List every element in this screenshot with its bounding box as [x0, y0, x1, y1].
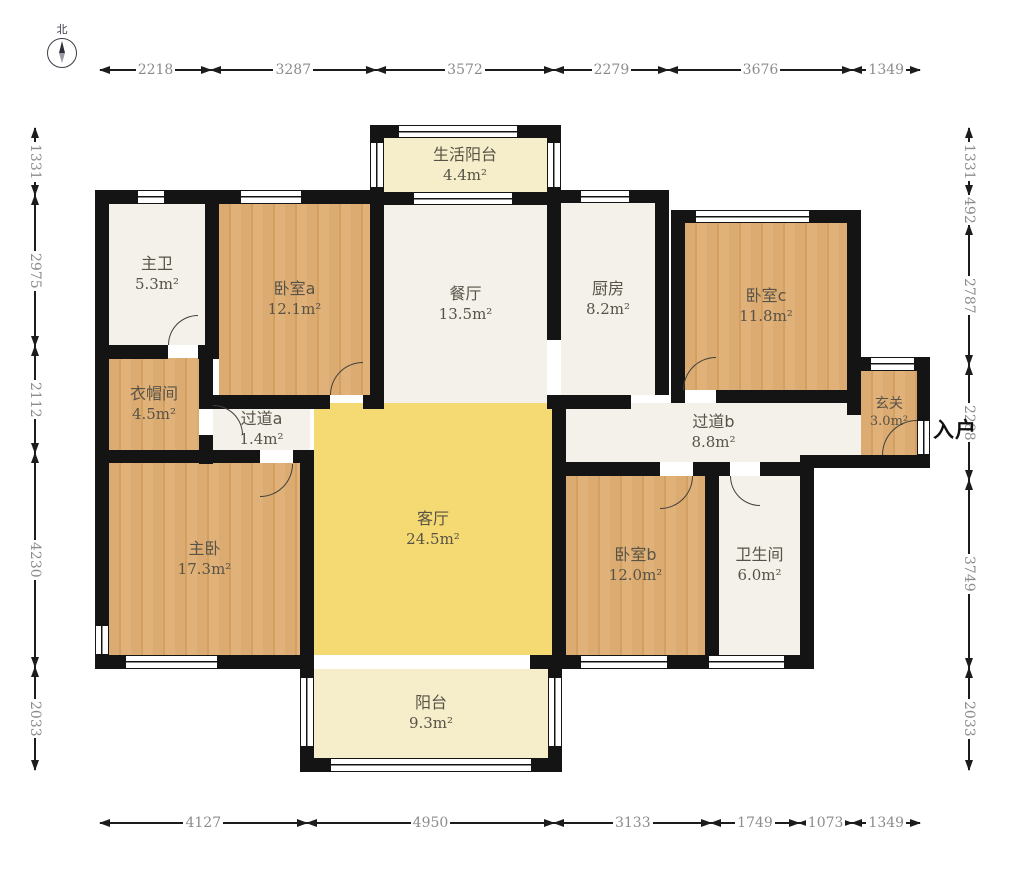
window: [548, 677, 562, 747]
wall-segment: [205, 190, 219, 358]
arrow-left-icon: [375, 66, 386, 74]
wall-segment: [705, 476, 719, 655]
dimension-segment: 2218: [100, 62, 211, 78]
wall-segment: [847, 210, 861, 357]
arrow-up-icon: [31, 666, 39, 677]
wall-segment: [800, 462, 814, 669]
arrow-left-icon: [851, 66, 862, 74]
window: [370, 142, 384, 188]
room-living: 客厅24.5m²: [314, 403, 552, 655]
room-area: 6.0m²: [737, 566, 781, 586]
north-label: 北: [42, 24, 82, 36]
wall-segment: [198, 345, 219, 359]
wall-segment: [917, 357, 930, 420]
arrow-left-icon: [99, 66, 110, 74]
arrow-left-icon: [99, 819, 110, 827]
room-name: 卫生间: [735, 545, 783, 566]
arrow-up-icon: [31, 194, 39, 205]
arrow-left-icon: [667, 66, 678, 74]
window: [95, 625, 109, 655]
dimension-segment: 492: [961, 195, 977, 226]
dimension-value: 492: [961, 195, 977, 226]
room-area: 13.5m²: [439, 305, 493, 325]
dimension-value: 1331: [27, 142, 43, 182]
window: [547, 142, 561, 188]
dimension-value: 3133: [613, 815, 653, 831]
dimension-segment: 2787: [961, 225, 977, 365]
window: [695, 210, 810, 223]
arrow-down-icon: [965, 760, 973, 771]
dimension-segment: 3676: [668, 62, 852, 78]
dimension-segment: 2112: [27, 346, 43, 453]
arrow-up-icon: [31, 127, 39, 138]
dimension-segment: 2279: [554, 62, 668, 78]
room-name: 主卫: [141, 254, 173, 275]
room-name: 阳台: [415, 693, 447, 714]
dimension-segment: 4127: [100, 815, 307, 831]
wall-segment: [671, 210, 685, 403]
wall-segment: [95, 190, 109, 668]
compass: 北: [42, 24, 82, 68]
room-name: 厨房: [592, 279, 624, 300]
arrow-up-icon: [965, 364, 973, 375]
wall-segment: [785, 655, 814, 669]
dimension-segment: 1073: [799, 815, 853, 831]
dimension-segment: 3287: [211, 62, 376, 78]
dimension-value: 2218: [136, 62, 176, 78]
room-hallway-b: 过道b8.8m²: [566, 403, 861, 462]
arrow-up-icon: [31, 452, 39, 463]
window: [240, 190, 302, 204]
wall-segment: [532, 758, 562, 772]
dimension-segment: 1349: [852, 815, 920, 831]
room-area: 1.4m²: [239, 430, 283, 450]
wall-segment: [671, 390, 683, 403]
entry-door-leaf: [917, 420, 930, 455]
dimension-segment: 1349: [852, 62, 920, 78]
wall-segment: [300, 758, 330, 772]
wall-segment: [165, 190, 240, 204]
window: [580, 655, 668, 669]
wall-segment: [95, 450, 260, 463]
wall-segment: [693, 462, 730, 476]
wall-segment: [552, 398, 566, 669]
arrow-up-icon: [31, 345, 39, 356]
dimension-segment: 3572: [376, 62, 555, 78]
dimension-value: 1331: [961, 142, 977, 182]
arrow-right-icon: [910, 66, 921, 74]
sliding-door: [413, 192, 513, 205]
room-life-balcony: 生活阳台4.4m²: [383, 138, 547, 192]
floor-plan: 生活阳台4.4m² 主卫5.3m² 卧室a12.1m² 餐厅13.5m² 厨房8…: [95, 120, 930, 775]
wall-segment: [293, 450, 314, 463]
dimension-value: 3287: [273, 62, 313, 78]
dimension-value: 4127: [183, 815, 223, 831]
wall-segment: [218, 655, 314, 669]
dimension-value: 1349: [866, 815, 906, 831]
room-area: 8.8m²: [691, 433, 735, 453]
compass-needle-north: [59, 41, 65, 53]
dimension-chain-bottom: 4127 4950 3133 1749 1073 1349: [100, 815, 920, 831]
room-area: 8.2m²: [586, 300, 630, 320]
room-closet: 衣帽间4.5m²: [109, 358, 199, 450]
arrow-left-icon: [851, 819, 862, 827]
dimension-segment: 3749: [961, 480, 977, 668]
window: [580, 190, 630, 203]
room-name: 主卧: [188, 539, 220, 560]
dimension-chain-top: 2218 3287 3572 2279 3676 1349: [100, 62, 920, 78]
arrow-left-icon: [553, 819, 564, 827]
dimension-chain-right: 1331 492 2787 2288 3749 2033: [961, 128, 977, 770]
arrow-left-icon: [306, 819, 317, 827]
dimension-value: 4950: [411, 815, 451, 831]
dimension-segment: 1749: [711, 815, 799, 831]
wall-segment: [847, 357, 861, 415]
room-balcony: 阳台9.3m²: [314, 669, 548, 758]
room-name: 餐厅: [449, 284, 481, 305]
arrow-right-icon: [910, 819, 921, 827]
wall-segment: [668, 655, 708, 669]
window: [870, 357, 915, 371]
room-area: 17.3m²: [178, 560, 232, 580]
arrow-down-icon: [31, 760, 39, 771]
room-name: 客厅: [417, 509, 449, 530]
dimension-segment: 2033: [27, 667, 43, 770]
dimension-segment: 2033: [961, 668, 977, 770]
dimension-value: 1749: [735, 815, 775, 831]
dimension-value: 4230: [27, 540, 43, 580]
dimension-segment: 2975: [27, 195, 43, 346]
room-area: 11.8m²: [739, 307, 793, 327]
wall-segment: [716, 390, 861, 403]
room-area: 9.3m²: [409, 714, 453, 734]
arrow-up-icon: [965, 224, 973, 235]
wall-segment: [655, 203, 669, 395]
wall-segment: [370, 192, 413, 205]
room-name: 衣帽间: [130, 384, 178, 405]
dimension-value: 2112: [27, 380, 43, 420]
floor-plan-page: 北 2218 3287 3572 2279 3676 1349 4127 495…: [0, 0, 1019, 893]
wall-segment: [95, 345, 168, 359]
entry-label: 入户: [933, 414, 977, 444]
room-area: 24.5m²: [406, 530, 460, 550]
wall-segment: [300, 463, 314, 655]
window: [708, 655, 785, 669]
wall-segment: [630, 190, 669, 203]
window: [300, 677, 314, 747]
room-bedroom-b: 卧室b12.0m²: [566, 476, 705, 655]
room-name: 卧室a: [274, 279, 316, 300]
dimension-segment: 1331: [27, 128, 43, 195]
window: [137, 190, 165, 204]
room-name: 卧室c: [746, 286, 787, 307]
dimension-value: 2279: [592, 62, 632, 78]
room-kitchen: 厨房8.2m²: [561, 203, 655, 395]
window: [125, 655, 218, 669]
dimension-segment: 3133: [554, 815, 711, 831]
wall-segment: [671, 210, 695, 223]
room-name: 过道b: [692, 412, 734, 433]
arrow-up-icon: [965, 479, 973, 490]
window: [398, 125, 518, 138]
dimension-segment: 4230: [27, 453, 43, 667]
room-name: 过道a: [241, 409, 283, 430]
room-dining: 餐厅13.5m²: [384, 205, 547, 403]
dimension-value: 2787: [961, 276, 977, 316]
dimension-value: 2033: [27, 699, 43, 739]
room-name: 卧室b: [614, 545, 656, 566]
dimension-chain-left: 1331 2975 2112 4230 2033: [27, 128, 43, 770]
wall-segment: [95, 655, 125, 669]
arrow-left-icon: [710, 819, 721, 827]
dimension-value: 3749: [961, 554, 977, 594]
room-area: 5.3m²: [135, 275, 179, 295]
arrow-up-icon: [965, 667, 973, 678]
dimension-value: 2033: [961, 699, 977, 739]
room-area: 12.1m²: [268, 300, 322, 320]
dimension-value: 2975: [27, 251, 43, 291]
compass-icon: [47, 38, 77, 68]
dimension-segment: 1331: [961, 128, 977, 195]
wall-segment: [363, 395, 384, 409]
wall-segment: [552, 462, 660, 476]
dimension-value: 3676: [741, 62, 781, 78]
room-area: 4.5m²: [132, 405, 176, 425]
wall-segment: [530, 655, 566, 669]
wall-segment: [370, 125, 398, 138]
dimension-segment: 4950: [307, 815, 555, 831]
dimension-value: 1073: [806, 815, 846, 831]
dimension-value: 1349: [866, 62, 906, 78]
wall-segment: [561, 190, 580, 203]
room-area: 4.4m²: [443, 166, 487, 186]
room-name: 玄关: [875, 395, 903, 413]
window: [330, 758, 532, 772]
arrow-left-icon: [553, 66, 564, 74]
room-name: 生活阳台: [433, 145, 497, 166]
dimension-value: 3572: [445, 62, 485, 78]
arrow-left-icon: [210, 66, 221, 74]
arrow-up-icon: [965, 127, 973, 138]
compass-needle-south: [59, 53, 65, 63]
room-area: 12.0m²: [609, 566, 663, 586]
wall-segment: [800, 455, 930, 468]
